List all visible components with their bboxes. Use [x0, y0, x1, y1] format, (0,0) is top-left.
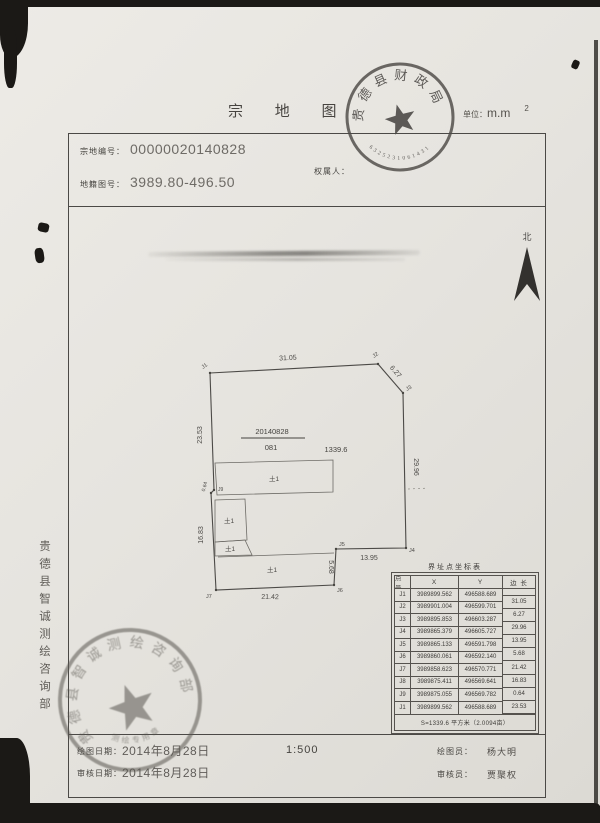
table-cell: 3989899.562 — [411, 702, 459, 715]
header-separator — [68, 206, 545, 207]
sheet-code-annotation: 081 — [265, 443, 278, 452]
parcel-number-value: 00000020140828 — [130, 141, 246, 157]
table-cell: 3989899.562 — [411, 589, 459, 602]
drafter-label: 绘图员： — [437, 746, 473, 757]
edge-length: 13.95 — [360, 555, 378, 562]
area-summary: S=1339.6 平方米（2.0094亩） — [395, 714, 535, 730]
svg-text:贵德县智诚测绘咨询部: 贵德县智诚测绘咨询部 — [46, 616, 202, 749]
north-arrow-icon — [514, 247, 540, 301]
table-cell: J9 — [395, 689, 411, 702]
edge-length: 21.42 — [261, 594, 279, 601]
building-label: 土1 — [225, 544, 236, 553]
unit-note: 单位：m.m2 — [463, 104, 529, 122]
table-cell: 496603.287 — [459, 614, 503, 627]
table-cell: J4 — [395, 627, 411, 640]
table-cell: 3989865.379 — [411, 627, 459, 640]
col-header-point: 点 号 — [395, 576, 411, 589]
map-scale: 1:500 — [286, 744, 319, 756]
table-cell: 496591.798 — [459, 639, 503, 652]
table-cell: 13.95 — [503, 634, 535, 647]
edge-length-column: 31.05 6.27 29.96 13.95 5.68 21.42 16.83 … — [503, 589, 535, 714]
drafter-name: 杨大明 — [487, 745, 517, 758]
owner-label: 权属人： — [314, 166, 350, 177]
adjacent-boundary-dashed-line — [408, 486, 425, 489]
col-header-y: Y — [459, 576, 503, 589]
table-cell: 5.68 — [503, 647, 535, 660]
table-cell: 16.83 — [503, 674, 535, 687]
edge-length: 31.05 — [279, 355, 297, 363]
table-cell: 3989875.411 — [411, 677, 459, 690]
point-label: J2 — [372, 351, 380, 359]
table-cell: J6 — [395, 652, 411, 665]
building-label: 土1 — [224, 516, 235, 525]
reviewer-label: 审核员： — [437, 769, 473, 780]
scan-edge-top — [0, 0, 600, 7]
scan-edge-right — [594, 40, 598, 810]
point-label: J4 — [409, 548, 415, 554]
table-cell: 496599.701 — [459, 602, 503, 615]
table-cell: J1 — [395, 589, 411, 602]
table-cell: 3989901.004 — [411, 602, 459, 615]
sheet-number-label: 地籍图号： — [80, 179, 125, 190]
building-outline-4 — [218, 553, 334, 557]
table-cell: 21.42 — [503, 660, 535, 673]
north-label: 北 — [522, 232, 531, 242]
table-cell: J8 — [395, 677, 411, 690]
table-cell: 496569.782 — [459, 689, 503, 702]
table-cell: 496569.641 — [459, 677, 503, 690]
star-icon — [103, 677, 161, 733]
scan-edge-bottom — [0, 803, 600, 823]
col-header-x: X — [411, 576, 459, 589]
table-cell: 496588.689 — [459, 702, 503, 715]
sheet-number-value: 3989.80-496.50 — [130, 174, 235, 190]
table-cell: 496605.727 — [459, 627, 503, 640]
reviewer-name: 贾聚权 — [487, 768, 517, 781]
table-cell: 496570.771 — [459, 664, 503, 677]
building-label: 土1 — [267, 565, 278, 574]
building-label: 土1 — [269, 474, 280, 483]
point-label: J9 — [218, 487, 224, 493]
point-label: J7 — [206, 594, 212, 600]
unit-value: m.m — [487, 106, 510, 120]
edge-length: 29.96 — [412, 458, 419, 476]
table-cell: J1 — [395, 702, 411, 715]
edge-length: 16.83 — [198, 526, 205, 544]
table-cell: 3989860.061 — [411, 652, 459, 665]
table-cell: J7 — [395, 664, 411, 677]
point-label: J1 — [201, 362, 209, 370]
table-cell: 3989858.623 — [411, 664, 459, 677]
coordinate-table-title: 界址点坐标表 — [428, 562, 482, 572]
table-cell: J5 — [395, 639, 411, 652]
star-icon — [382, 101, 419, 137]
table-cell: 3989895.853 — [411, 614, 459, 627]
table-cell: J3 — [395, 614, 411, 627]
scanned-parcel-map-page: 宗 地 图 单位：m.m2 贵德县财政局 6325231061431 宗地编号：… — [0, 0, 600, 823]
table-cell: 496588.689 — [459, 589, 503, 602]
unit-label: 单位： — [463, 110, 487, 119]
edge-length: 0.64 — [201, 481, 209, 492]
table-cell: 23.53 — [503, 700, 535, 713]
edge-length: 5.68 — [327, 560, 334, 574]
north-arrow: 北 — [506, 227, 548, 305]
table-cell: 29.96 — [503, 621, 535, 634]
unit-superscript: 2 — [524, 104, 528, 113]
parcel-drawing: 土1 土1 土1 土1 31.05 6.27 29.96 13.95 5.68 … — [185, 346, 425, 606]
seal-arc-text: 贵德县智诚测绘咨询部 — [46, 616, 202, 749]
surveyor-company-seal: 贵德县智诚测绘咨询部 测绘专用章 — [46, 616, 214, 784]
table-cell: 3989865.133 — [411, 639, 459, 652]
table-cell: 6.27 — [503, 608, 535, 621]
table-cell: 3989875.055 — [411, 689, 459, 702]
table-cell: 496592.140 — [459, 652, 503, 665]
coordinate-table: 点 号 X Y 边 长 J1 3989899.562 496588.689 31… — [394, 575, 536, 731]
scan-blob-bottom-left — [0, 738, 30, 823]
table-cell: J2 — [395, 602, 411, 615]
seal-sub-text: 测绘专用章 — [108, 716, 165, 753]
page-title: 宗 地 图 — [228, 100, 351, 121]
table-cell: 0.64 — [503, 687, 535, 700]
point-label: J5 — [339, 542, 345, 548]
parcel-number-annotation: 20140828 — [255, 427, 288, 436]
scan-blob-left — [4, 26, 17, 88]
point-label: J6 — [337, 588, 343, 594]
table-cell: 31.05 — [503, 595, 535, 608]
parcel-number-label: 宗地编号： — [80, 146, 125, 157]
point-label: J3 — [405, 385, 413, 393]
col-header-length: 边 长 — [503, 576, 535, 589]
edge-length: 23.53 — [197, 426, 204, 444]
area-annotation: 1339.6 — [325, 445, 348, 454]
svg-text:测绘专用章: 测绘专用章 — [108, 716, 165, 753]
